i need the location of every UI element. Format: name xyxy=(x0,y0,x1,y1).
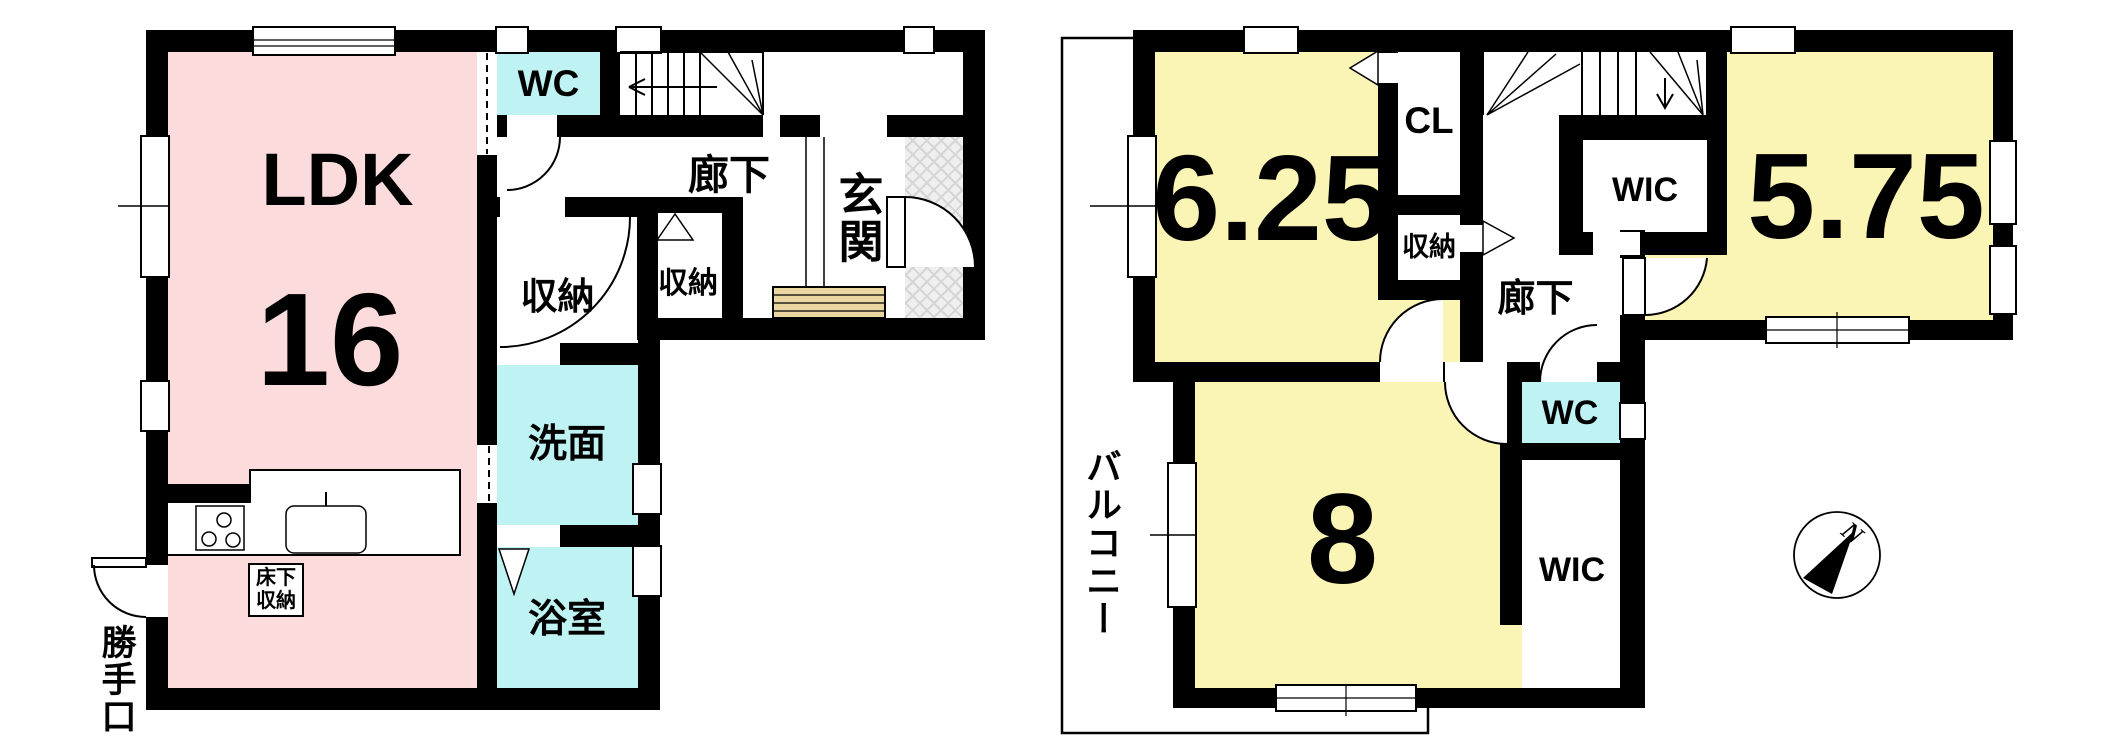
window xyxy=(1730,26,1796,54)
wic-lower-label: WIC xyxy=(1522,540,1622,600)
window xyxy=(1275,684,1417,712)
floor-plan-canvas: LDK 16 WC 廊下 玄関 収納 収納 洗面 浴室 床下 収納 勝手口 xyxy=(0,0,2108,743)
room-6-25-label: 6.25 xyxy=(1160,120,1382,275)
storage-2f-label: 収納 xyxy=(1396,218,1462,276)
window xyxy=(1167,462,1197,608)
room-5-75-entry xyxy=(1645,255,1727,320)
room-8-ext xyxy=(1500,625,1522,688)
wall xyxy=(1398,195,1460,215)
room-6-25-ext xyxy=(1378,300,1460,362)
door-opening-5-75 xyxy=(1620,258,1645,315)
window xyxy=(1989,140,2017,225)
room-8-label: 8 xyxy=(1295,462,1390,617)
window xyxy=(1765,316,1910,344)
door-opening-wic-upper xyxy=(1593,232,1640,255)
wall xyxy=(1500,382,1522,625)
window xyxy=(1989,245,2017,315)
room-5-75-label: 5.75 xyxy=(1752,118,1980,273)
door-opening-room-8 xyxy=(1445,362,1507,382)
window xyxy=(1243,26,1299,54)
wc-2f-label: WC xyxy=(1520,382,1620,443)
closet-label: CL xyxy=(1398,85,1460,155)
door-opening-closet xyxy=(1378,53,1398,83)
door-opening-storage-2f xyxy=(1460,225,1483,252)
window xyxy=(1619,402,1646,440)
hallway-2f-label: 廊下 xyxy=(1468,268,1603,330)
balcony-label: バルコニー xyxy=(1076,445,1126,640)
floor-plan-2f: 6.25 5.75 8 CL 収納 WIC WIC WC 廊下 バルコニー xyxy=(0,0,2108,743)
door-opening-6-25 xyxy=(1380,362,1443,382)
wall xyxy=(1707,30,1727,255)
wic-upper-label: WIC xyxy=(1583,155,1707,225)
door-opening-wc-2f xyxy=(1540,362,1597,382)
